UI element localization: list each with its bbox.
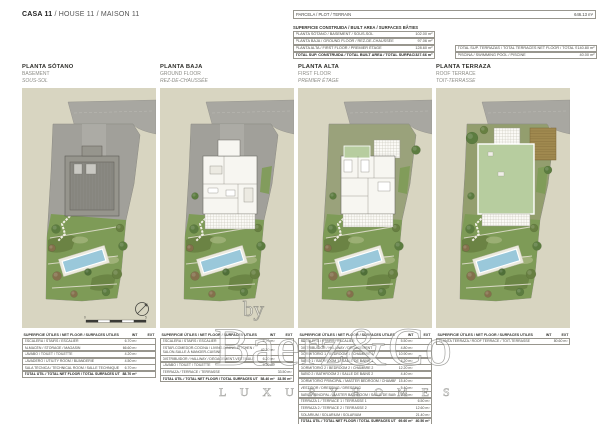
page-title: CASA 11 / HOUSE 11 / MAISON 11 — [22, 11, 140, 18]
floor-title-es: PLANTA TERRAZA — [436, 64, 570, 70]
floor-title-roof: PLANTA TERRAZA ROOF TERRACE TOIT-TERRASS… — [436, 64, 570, 84]
floor-title-en: FIRST FLOOR — [298, 71, 432, 77]
plan-sheet: CASA 11 / HOUSE 11 / MAISON 11 PARCELA /… — [0, 0, 600, 424]
floor-title-fr: REZ-DE-CHAUSSÉE — [160, 78, 294, 84]
house-first — [341, 146, 395, 214]
table-row: PISCINA / SWIMMING POOL / PISCINE40.00 m… — [455, 52, 597, 60]
table-row: TOTAL SUP. CONSTRUIDA / TOTAL BUILT AREA… — [293, 52, 435, 60]
floor-title-en: GROUND FLOOR — [160, 71, 294, 77]
floor-title-es: PLANTA SÓTANO — [22, 64, 156, 70]
site-plan-basement: 0 5 — [22, 88, 156, 328]
floor-title-fr: PREMIER ÉTAGE — [298, 78, 432, 84]
svg-text:0: 0 — [84, 316, 86, 320]
roof-terrace — [478, 144, 534, 214]
house-number-translations: / HOUSE 11 / MAISON 11 — [52, 11, 139, 18]
house-basement — [65, 146, 119, 216]
floor-title-es: PLANTA BAJA — [160, 64, 294, 70]
floor-title-fr: TOIT-TERRASSE — [436, 78, 570, 84]
net-floor-table-roof: SUPERFICIE ÚTILES / NET FLOOR / SURFACES… — [436, 333, 570, 345]
floor-title-basement: PLANTA SÓTANO BASEMENT SOUS-SOL — [22, 64, 156, 84]
floor-title-es: PLANTA ALTA — [298, 64, 432, 70]
table-row: PLANTA TERRAZA / ROOF TERRACE / TOIT-TER… — [436, 338, 570, 345]
table-row: ESTAR-COMEDOR-COCINA / LIVING-DINING-KIT… — [160, 344, 294, 355]
terraces-pool-table: TOTAL SUP. TERRAZAS / TOTAL TERRACES NET… — [455, 45, 597, 59]
site-plan-roof — [436, 88, 570, 328]
net-floor-table-basement: SUPERFICIE ÚTILES / NET FLOOR / SURFACES… — [22, 333, 156, 378]
house-number: CASA 11 — [22, 11, 52, 18]
built-area-header: SUPERFICIE CONSTRUIDA / BUILT AREA / SUR… — [293, 25, 418, 30]
svg-text:5: 5 — [145, 316, 147, 320]
built-area-table: PLANTA SÓTANO / BASEMENT / SOUS-SOL102.0… — [293, 31, 435, 59]
floor-title-en: BASEMENT — [22, 71, 156, 77]
site-plan-ground — [160, 88, 294, 328]
site-plan-first — [298, 88, 432, 328]
plot-area-row: PARCELA / PLOT / TERRAIN 646.13 m² — [293, 10, 596, 19]
table-row: TOTAL ÚTIL / TOTAL NET FLOOR / TOTAL SUR… — [160, 375, 294, 382]
floor-title-fr: SOUS-SOL — [22, 78, 156, 84]
table-row: TOTAL ÚTIL / TOTAL NET FLOOR / TOTAL SUR… — [22, 371, 156, 378]
table-row: TOTAL ÚTIL / TOTAL NET FLOOR / TOTAL SUR… — [298, 418, 432, 424]
net-floor-table-ground: SUPERFICIE ÚTILES / NET FLOOR / SURFACES… — [160, 333, 294, 382]
floor-title-ground: PLANTA BAJA GROUND FLOOR REZ-DE-CHAUSSÉE — [160, 64, 294, 84]
net-floor-table-first: SUPERFICIE ÚTILES / NET FLOOR / SURFACES… — [298, 333, 432, 424]
plot-value: 646.13 m² — [574, 12, 593, 17]
plot-label: PARCELA / PLOT / TERRAIN — [296, 12, 351, 17]
floor-title-first: PLANTA ALTA FIRST FLOOR PREMIER ÉTAGE — [298, 64, 432, 84]
floor-title-en: ROOF TERRACE — [436, 71, 570, 77]
